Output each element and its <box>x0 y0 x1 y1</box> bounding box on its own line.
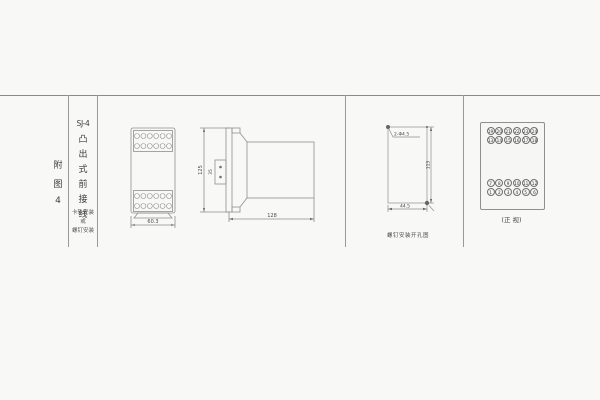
terminal-top-block: 19 20 21 22 23 24 13 14 15 16 17 18 <box>481 127 544 144</box>
terminal-circle: 1 <box>487 188 495 196</box>
column-divider-4 <box>463 95 464 247</box>
drill-view-drawing: 2-Φ4.5 113 44.5 <box>376 116 440 220</box>
terminal-view-caption: (正 视) <box>480 214 543 224</box>
terminal-circle: 19 <box>487 127 495 135</box>
terminal-row: 7 8 9 10 11 12 <box>486 179 539 187</box>
terminal-circle: 14 <box>495 136 503 144</box>
wiring-type-char: 出 <box>78 147 87 160</box>
terminal-view-panel: 19 20 21 22 23 24 13 14 15 16 17 18 7 8 … <box>480 122 545 210</box>
wiring-type-char: 式 <box>78 162 87 175</box>
mounting-note-line: 或 <box>69 218 97 227</box>
terminal-circle: 9 <box>504 179 512 187</box>
wiring-type-char: 凸 <box>78 132 87 145</box>
figure-index-char: 图 <box>53 177 62 190</box>
wiring-type-char: 前 <box>78 177 87 190</box>
terminal-circle: 13 <box>487 136 495 144</box>
side-clip-dimension: 35 <box>208 169 214 175</box>
terminal-circle: 16 <box>513 136 521 144</box>
wiring-type-char: 接 <box>78 192 87 205</box>
drill-hole-label: 2-Φ4.5 <box>394 132 409 138</box>
mounting-note: 卡轨安装 或 螺钉安装 <box>69 209 97 236</box>
terminal-circle: 5 <box>522 188 530 196</box>
terminal-circle: 17 <box>522 136 530 144</box>
terminal-circle: 15 <box>504 136 512 144</box>
terminal-circle: 24 <box>530 127 538 135</box>
terminal-circle: 2 <box>495 188 503 196</box>
header-rule <box>0 95 600 96</box>
mounting-note-line: 卡轨安装 <box>69 209 97 218</box>
side-depth-dimension: 128 <box>267 213 277 219</box>
terminal-row: 13 14 15 16 17 18 <box>486 136 539 144</box>
drill-width-dimension: 44.5 <box>400 204 410 210</box>
wiring-type-label: 凸 出 式 前 接 线 <box>69 132 97 220</box>
terminal-bottom-block: 7 8 9 10 11 12 1 2 3 4 5 6 <box>481 179 544 196</box>
terminal-circle: 12 <box>530 179 538 187</box>
terminal-circle: 11 <box>522 179 530 187</box>
terminal-circle: 6 <box>530 188 538 196</box>
terminal-circle: 22 <box>513 127 521 135</box>
terminal-circle: 3 <box>504 188 512 196</box>
drill-view-caption: 螺钉安装开孔图 <box>370 231 446 239</box>
terminal-circle: 4 <box>513 188 521 196</box>
terminal-circle: 18 <box>530 136 538 144</box>
terminal-row: 19 20 21 22 23 24 <box>486 127 539 135</box>
front-width-dimension: 60.3 <box>147 219 158 225</box>
column-divider-3 <box>345 95 346 247</box>
terminal-circle: 10 <box>513 179 521 187</box>
side-view-drawing: 125 35 128 <box>196 112 336 230</box>
terminal-circle: 21 <box>504 127 512 135</box>
mounting-note-line: 螺钉安装 <box>69 227 97 236</box>
model-label: SJ-4 <box>69 119 97 128</box>
figure-index-char: 附 <box>53 158 62 171</box>
drawing-sheet: 附 图 4 SJ-4 凸 出 式 前 接 线 卡轨安装 或 螺钉安装 <box>0 0 600 400</box>
front-view-drawing: 60.3 <box>126 114 184 236</box>
side-height-dimension: 125 <box>198 165 204 175</box>
column-divider-2 <box>97 95 98 247</box>
terminal-row: 1 2 3 4 5 6 <box>486 188 539 196</box>
terminal-circle: 20 <box>495 127 503 135</box>
terminal-circle: 7 <box>487 179 495 187</box>
drill-height-dimension: 113 <box>426 161 432 170</box>
terminal-circle: 8 <box>495 179 503 187</box>
figure-index-char: 4 <box>55 196 61 206</box>
figure-index: 附 图 4 <box>50 158 66 206</box>
terminal-circle: 23 <box>522 127 530 135</box>
